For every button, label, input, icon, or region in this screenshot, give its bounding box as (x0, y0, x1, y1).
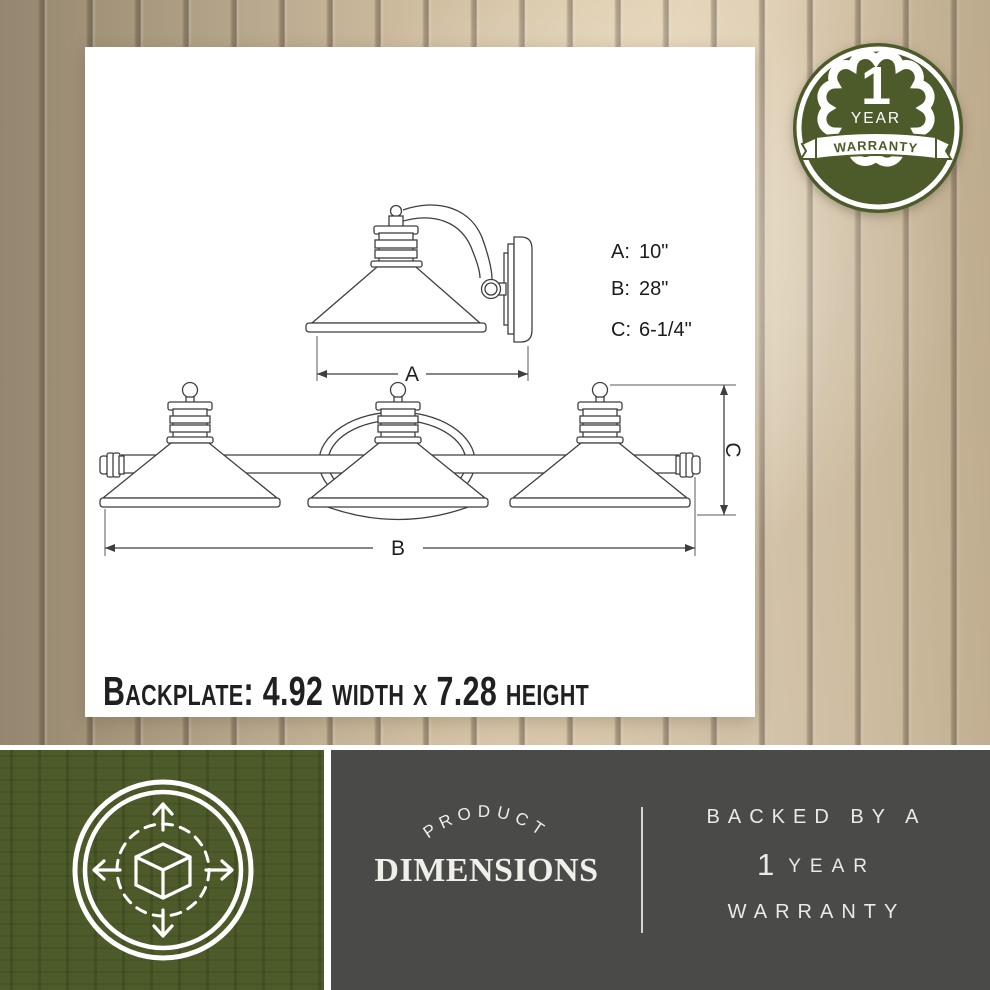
line-art-diagram: A (85, 47, 755, 717)
spec-row-b: B: 28" (611, 277, 668, 301)
dimensions-title: DIMENSIONS (331, 852, 642, 890)
warranty-text-block: BACKED BY A 1YEAR WARRANTY (643, 750, 990, 990)
spec-row-a: A: 10" (611, 240, 668, 264)
dimension-line-a: A (317, 336, 528, 386)
charcoal-info-panel: PRODUCT DIMENSIONS BACKED BY A 1YEAR WAR… (331, 750, 990, 990)
warranty-line-1: BACKED BY A (643, 806, 990, 829)
badge-year-label: YEAR (851, 110, 901, 127)
warranty-line-2: 1YEAR (643, 847, 990, 883)
spec-row-c: C: 6-1/4" (611, 318, 692, 342)
vanity-shade-center (308, 383, 488, 520)
spec-c-label: C: (611, 318, 639, 342)
dim-label-a: A (405, 363, 419, 386)
vanity-shade-left (100, 383, 280, 508)
sconce-wall-plate (504, 237, 532, 342)
dimensions-diagram-card: A (85, 47, 755, 717)
vanity-front-view: B C (100, 383, 744, 561)
dim-label-c: C (721, 442, 744, 457)
sconce-side-view: A (306, 205, 532, 386)
spec-c-value: 6-1/4" (639, 318, 692, 342)
dim-label-b: B (391, 537, 405, 560)
one-year-warranty-badge-icon: 1 YEAR WARRANTY (792, 42, 964, 214)
spec-a-value: 10" (639, 240, 668, 264)
green-dimensions-tile (0, 750, 324, 990)
product-dimensions-block: PRODUCT DIMENSIONS (331, 750, 642, 990)
dimensions-cube-icon (0, 750, 324, 990)
vanity-shade-right (510, 383, 690, 508)
warranty-year-word: YEAR (788, 856, 876, 877)
spec-a-label: A: (611, 240, 639, 264)
sconce-shade (306, 206, 486, 333)
backplate-dimensions-note: Backplate: 4.92 width x 7.28 height (103, 669, 589, 713)
svg-text:PRODUCT: PRODUCT (420, 802, 553, 842)
arc-title: PRODUCT (420, 802, 553, 842)
spec-b-label: B: (611, 277, 639, 301)
cube-wireframe-icon (136, 844, 190, 898)
warranty-line-3: WARRANTY (643, 901, 990, 924)
footer-strip: PRODUCT DIMENSIONS BACKED BY A 1YEAR WAR… (0, 745, 990, 990)
warranty-number: 1 (757, 847, 776, 882)
spec-b-value: 28" (639, 277, 668, 301)
badge-number: 1 (861, 56, 891, 116)
